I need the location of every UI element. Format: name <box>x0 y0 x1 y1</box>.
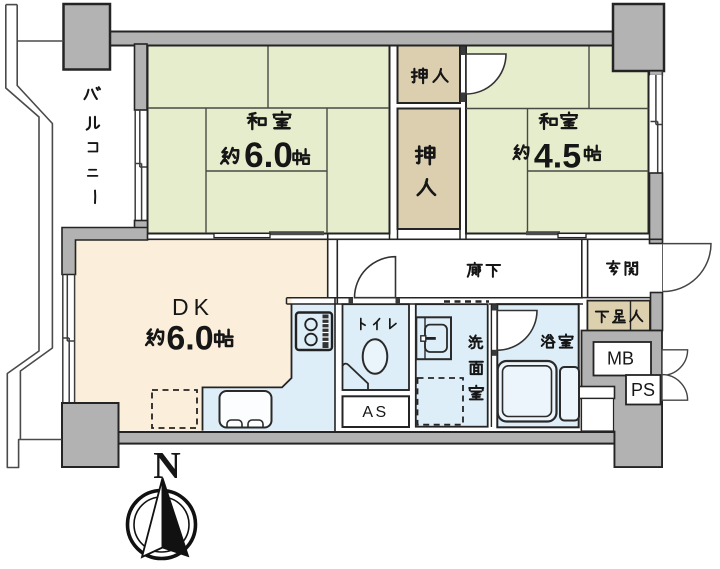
svg-text:PS: PS <box>631 380 655 400</box>
svg-text:AS: AS <box>362 404 388 421</box>
svg-text:MB: MB <box>607 349 634 369</box>
svg-text:6.0: 6.0 <box>166 320 213 358</box>
svg-text:N: N <box>153 445 180 487</box>
svg-text:DK: DK <box>172 294 214 320</box>
svg-text:6.0: 6.0 <box>244 136 293 175</box>
svg-text:4.5: 4.5 <box>534 138 581 176</box>
